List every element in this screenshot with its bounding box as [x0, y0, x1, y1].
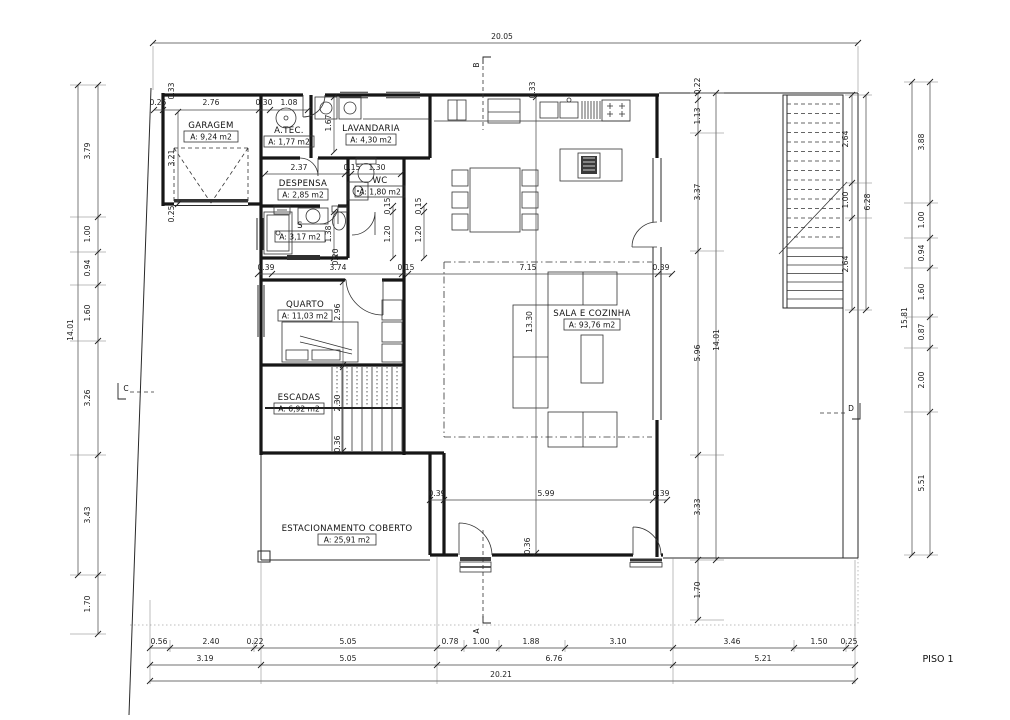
- dim-right-outer: 5.51: [917, 474, 926, 491]
- dim-misc: 13.30: [525, 311, 534, 333]
- dim-bottom1: 5.05: [340, 637, 357, 646]
- dim-misc: 3.21: [167, 149, 176, 166]
- dim-misc: 2.30: [333, 394, 342, 411]
- dim-misc: 1.20: [414, 225, 423, 242]
- svg-text:DESPENSA: DESPENSA: [279, 179, 327, 189]
- svg-text:GARAGEM: GARAGEM: [188, 121, 234, 131]
- dim-stairs-total: 6.28: [863, 193, 872, 210]
- dim-left: 3.79: [83, 142, 92, 159]
- svg-text:A: 11,03 m2: A: 11,03 m2: [282, 312, 329, 321]
- dim-left: 3.43: [83, 506, 92, 523]
- svg-text:A: 1,77 m2: A: 1,77 m2: [268, 138, 310, 147]
- svg-text:B: B: [472, 62, 481, 67]
- dim-corridor: 0.39: [653, 263, 670, 272]
- dim-right-inner: 1.13: [693, 107, 702, 124]
- dim-bottom1: 0.78: [442, 637, 459, 646]
- dim-bottom1: 1.88: [523, 637, 540, 646]
- dim-right-inner: 0.22: [693, 77, 702, 94]
- dim-bottom-total: 20.21: [490, 670, 512, 679]
- dim-right-inner: 5.96: [693, 344, 702, 361]
- room-label-garagem: GARAGEM A: 9,24 m2: [184, 121, 238, 142]
- dim-left: 1.60: [83, 304, 92, 321]
- dim-left: 1.00: [83, 225, 92, 242]
- dim-top-total: 20.05: [491, 32, 513, 41]
- dim-bottom2: 3.19: [197, 654, 214, 663]
- room-label-quarto: QUARTO A: 11,03 m2: [278, 300, 332, 321]
- dim-right-outer: 0.94: [917, 244, 926, 261]
- dim-stairs: 2.64: [841, 255, 850, 272]
- dim-right-inner-total: 14.01: [712, 329, 721, 351]
- dim-misc: 0.25: [167, 205, 176, 222]
- floor-plan-page: 20.05 0.56 2.40 0.22 5.05 0.78 1.00 1.88…: [0, 0, 1010, 720]
- room-label-sala: SALA E COZINHA A: 93,76 m2: [553, 309, 630, 330]
- dim-right-inner: 3.37: [693, 183, 702, 200]
- svg-text:A: 1,80 m2: A: 1,80 m2: [359, 188, 401, 197]
- svg-text:LAVANDARIA: LAVANDARIA: [342, 124, 400, 134]
- dim-garage-row: 1.08: [281, 98, 298, 107]
- site-boundary: [129, 88, 858, 715]
- svg-text:D: D: [848, 404, 854, 413]
- room-labels: GARAGEM A: 9,24 m2 A.TEC. A: 1,77 m2 LAV…: [184, 121, 631, 545]
- terrace-outline: [659, 93, 858, 558]
- floor-title: PISO 1: [922, 654, 953, 665]
- dim-bottom1: 3.10: [610, 637, 627, 646]
- exterior-stairs: [779, 95, 847, 308]
- dim-parking: 5.99: [538, 489, 555, 498]
- dim-bottom1: 1.00: [473, 637, 490, 646]
- dim-misc: 0.33: [167, 82, 176, 99]
- dim-right-outer-total: 15.81: [900, 307, 909, 329]
- dim-misc: 0.36: [523, 537, 532, 554]
- dim-misc: 0.15: [383, 197, 392, 214]
- dim-misc: 1.20: [383, 225, 392, 242]
- svg-text:A: 93,76 m2: A: 93,76 m2: [569, 321, 616, 330]
- dim-misc: 2.96: [333, 303, 342, 320]
- section-markers: B A C D: [118, 57, 860, 634]
- svg-text:C: C: [123, 384, 128, 393]
- dim-bottom1: 3.46: [724, 637, 741, 646]
- dim-misc: 0.15: [414, 197, 423, 214]
- dim-corridor: 7.15: [520, 263, 537, 272]
- dim-right-inner: 3.33: [693, 498, 702, 515]
- dim-right-inner: 1.70: [693, 581, 702, 598]
- svg-text:A: 25,91 m2: A: 25,91 m2: [324, 536, 371, 545]
- dim-bottom1: 0.25: [841, 637, 858, 646]
- dim-misc: 1.30: [369, 163, 386, 172]
- dim-right-outer: 3.88: [917, 133, 926, 150]
- dim-bottom1: 0.22: [247, 637, 264, 646]
- svg-text:A: 9,24 m2: A: 9,24 m2: [190, 133, 232, 142]
- svg-text:A: A: [472, 628, 481, 634]
- svg-text:ESCADAS: ESCADAS: [278, 393, 321, 403]
- dim-right-outer: 1.60: [917, 283, 926, 300]
- svg-text:ESTACIONAMENTO COBERTO: ESTACIONAMENTO COBERTO: [282, 524, 413, 534]
- room-label-wc: WC A: 1,80 m2: [355, 176, 405, 197]
- dim-corridor: 0.39: [258, 263, 275, 272]
- svg-text:S: S: [297, 221, 303, 231]
- dim-misc: 2.37: [291, 163, 308, 172]
- section-marker-b: B: [472, 57, 491, 68]
- room-label-escadas: ESCADAS A: 6,92 m2: [274, 393, 324, 414]
- dim-right-outer: 2.00: [917, 371, 926, 388]
- svg-text:A: 4,30 m2: A: 4,30 m2: [350, 136, 392, 145]
- dim-garage-row: 0.25: [150, 98, 167, 107]
- dim-stairs: 1.00: [841, 191, 850, 208]
- dim-bottom2: 5.21: [755, 654, 772, 663]
- svg-text:A.TEC.: A.TEC.: [274, 126, 304, 136]
- dim-stairs: 2.64: [841, 130, 850, 147]
- section-marker-c: C: [118, 383, 154, 399]
- dim-left: 0.94: [83, 259, 92, 276]
- dim-right-outer: 0.87: [917, 323, 926, 340]
- svg-text:A: 2,85 m2: A: 2,85 m2: [282, 191, 324, 200]
- dim-left-total: 14.01: [66, 319, 75, 341]
- dim-misc: 0.20: [331, 248, 340, 265]
- dim-bottom1: 0.56: [151, 637, 168, 646]
- dim-corridor: 0.15: [398, 263, 415, 272]
- dim-parking: 0.39: [429, 489, 446, 498]
- dim-misc: 1.67: [324, 114, 333, 131]
- dim-misc: 0.36: [333, 435, 342, 452]
- dim-garage-row: 2.76: [203, 98, 220, 107]
- dim-bottom1: 2.40: [203, 637, 220, 646]
- dim-misc: 0.33: [528, 81, 537, 98]
- dim-garage-row: 0.30: [256, 98, 273, 107]
- svg-text:QUARTO: QUARTO: [286, 300, 324, 310]
- dim-bottom1: 1.50: [811, 637, 828, 646]
- svg-text:A: 6,92 m2: A: 6,92 m2: [278, 405, 320, 414]
- section-marker-d: D: [820, 403, 860, 419]
- room-label-despensa: DESPENSA A: 2,85 m2: [278, 179, 328, 200]
- room-label-lavandaria: LAVANDARIA A: 4,30 m2: [342, 124, 400, 145]
- floor-plan-drawing: 20.05 0.56 2.40 0.22 5.05 0.78 1.00 1.88…: [0, 0, 1010, 720]
- dim-bottom2: 6.76: [546, 654, 563, 663]
- room-label-estacionamento: ESTACIONAMENTO COBERTO A: 25,91 m2: [282, 524, 413, 545]
- svg-text:WC: WC: [372, 176, 387, 186]
- svg-text:SALA E COZINHA: SALA E COZINHA: [553, 309, 630, 319]
- dim-left: 1.70: [83, 595, 92, 612]
- dim-right-outer: 1.00: [917, 211, 926, 228]
- room-label-atec: A.TEC. A: 1,77 m2: [264, 126, 314, 147]
- dim-misc: 0.15: [344, 163, 361, 172]
- dim-left: 3.26: [83, 389, 92, 406]
- dim-parking: 0.39: [653, 489, 670, 498]
- dim-bottom2: 5.05: [340, 654, 357, 663]
- svg-text:A: 3,17 m2: A: 3,17 m2: [279, 233, 321, 242]
